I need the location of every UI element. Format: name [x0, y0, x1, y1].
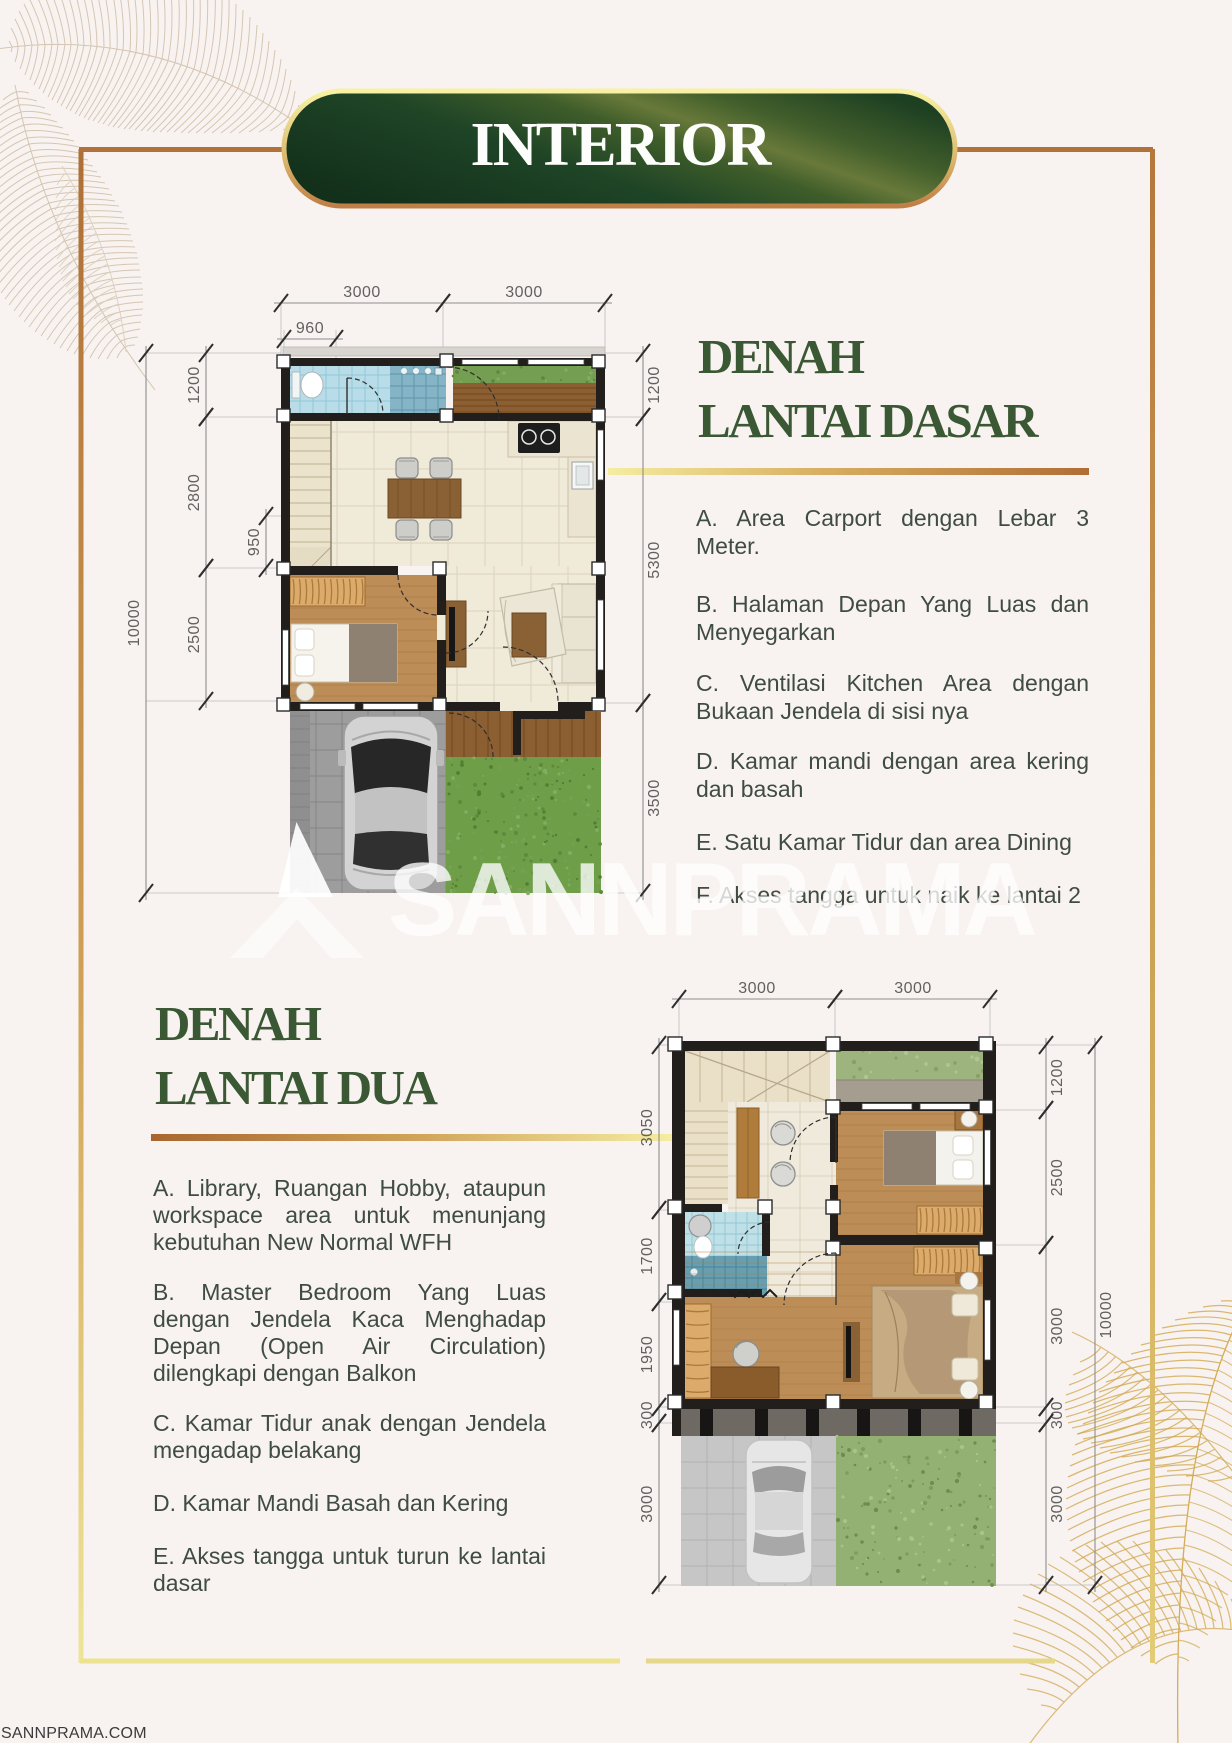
- svg-text:SANNPRAMA: SANNPRAMA: [388, 842, 1035, 958]
